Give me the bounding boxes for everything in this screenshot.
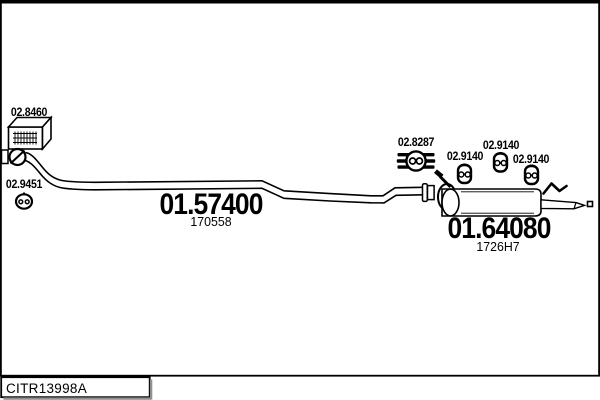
part-label-flange-gasket[interactable]: 02.9451 bbox=[6, 178, 42, 190]
part-label-rubber-mount[interactable]: 02.8287 bbox=[397, 136, 433, 148]
pipe-clamp-icon[interactable] bbox=[16, 193, 32, 209]
flange-gasket-icon[interactable] bbox=[2, 149, 26, 165]
rubber-hanger-icon-2[interactable] bbox=[494, 152, 507, 172]
tail-pipe-tip-marker bbox=[588, 202, 593, 207]
rubber-hanger-icon-3[interactable] bbox=[525, 165, 538, 185]
part-label-rubber-hanger-1[interactable]: 02.9140 bbox=[446, 150, 482, 162]
exhaust-parts-diagram: 02.8460 02.9451 01.57400 170558 02.8287 … bbox=[0, 0, 600, 400]
hanger-rod-zigzag bbox=[544, 184, 567, 194]
rubber-hanger-icon-1[interactable] bbox=[458, 164, 471, 184]
diagram-drawing bbox=[0, 0, 600, 400]
reference-code: CITR13998A bbox=[6, 381, 87, 396]
flexible-section-icon[interactable] bbox=[9, 118, 52, 150]
part-label-flexible-section[interactable]: 02.8460 bbox=[11, 106, 47, 118]
part-label-rubber-hanger-2[interactable]: 02.9140 bbox=[482, 139, 518, 151]
tail-pipe bbox=[541, 200, 585, 209]
part-sublabel-rear-silencer: 1726H7 bbox=[476, 240, 519, 253]
part-label-rubber-hanger-3[interactable]: 02.9140 bbox=[512, 153, 548, 165]
rubber-mount-icon[interactable] bbox=[397, 151, 435, 170]
flex-mesh-hatch-icon bbox=[13, 132, 37, 145]
part-sublabel-centre-pipe: 170558 bbox=[190, 215, 231, 228]
